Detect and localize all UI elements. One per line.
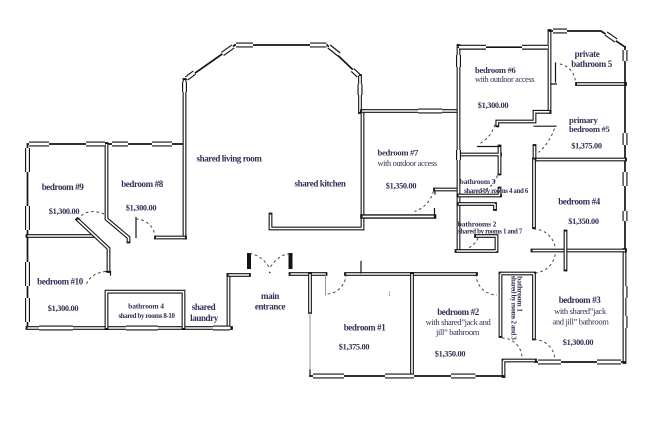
svg-text:$1,375.00: $1,375.00 — [339, 343, 370, 352]
svg-text:$1,300.00: $1,300.00 — [563, 338, 594, 347]
svg-text:entrance: entrance — [255, 302, 286, 312]
svg-text:and jill” bathroom: and jill” bathroom — [552, 317, 609, 327]
svg-text:bathroom 4: bathroom 4 — [128, 302, 164, 311]
svg-text:bathroom 3: bathroom 3 — [460, 177, 496, 186]
svg-text:$1,300.00: $1,300.00 — [49, 207, 80, 216]
svg-text:shared: shared — [192, 302, 216, 312]
svg-text:with shared”jack: with shared”jack — [554, 306, 607, 316]
svg-text:$1,350.00: $1,350.00 — [435, 350, 466, 359]
svg-text:laundry: laundry — [190, 313, 219, 323]
svg-text:bedroom #6: bedroom #6 — [475, 65, 517, 75]
svg-text:bedroom #1: bedroom #1 — [344, 323, 386, 333]
svg-text:bedroom #8: bedroom #8 — [121, 179, 163, 189]
svg-text:shared by rooms 1 and 7: shared by rooms 1 and 7 — [458, 229, 523, 236]
svg-text:$1,300.00: $1,300.00 — [48, 304, 79, 313]
svg-text:bedroom #10: bedroom #10 — [37, 277, 84, 287]
svg-text:$1,300.00: $1,300.00 — [478, 101, 509, 110]
svg-text:bedroom #9: bedroom #9 — [42, 182, 84, 192]
svg-text:with shared”jack and: with shared”jack and — [426, 317, 492, 327]
svg-text:bedroom #3: bedroom #3 — [559, 295, 601, 305]
svg-text:bedroom #2: bedroom #2 — [437, 307, 479, 317]
svg-text:bedroom #5: bedroom #5 — [569, 124, 610, 134]
svg-text:with outdoor access: with outdoor access — [475, 75, 534, 84]
svg-text:shared kitchen: shared kitchen — [295, 179, 346, 189]
svg-text:$1,375.00: $1,375.00 — [571, 142, 602, 151]
svg-text:with outdoor access: with outdoor access — [378, 159, 437, 168]
svg-text:$1,300.00: $1,300.00 — [126, 204, 157, 213]
svg-text:main: main — [261, 291, 279, 301]
svg-text:shared by rooms 2 and 3: shared by rooms 2 and 3 — [510, 276, 517, 341]
svg-text:shared by rooms 4 and 6: shared by rooms 4 and 6 — [464, 188, 529, 195]
svg-text:$1,350.00: $1,350.00 — [386, 182, 417, 191]
svg-text:1: 1 — [388, 290, 392, 298]
svg-text:bedroom #7: bedroom #7 — [378, 148, 420, 158]
svg-text:shared by rooms 8-10: shared by rooms 8-10 — [118, 313, 175, 320]
svg-text:bathroom 5: bathroom 5 — [571, 59, 612, 69]
svg-text:shared living room: shared living room — [197, 154, 263, 164]
svg-text:jill” bathroom: jill” bathroom — [435, 327, 480, 337]
svg-text:private: private — [575, 49, 600, 59]
svg-text:$1,350.00: $1,350.00 — [568, 217, 599, 226]
svg-text:bedroom #4: bedroom #4 — [558, 197, 600, 207]
svg-text:bathrooms 2: bathrooms 2 — [458, 220, 497, 229]
